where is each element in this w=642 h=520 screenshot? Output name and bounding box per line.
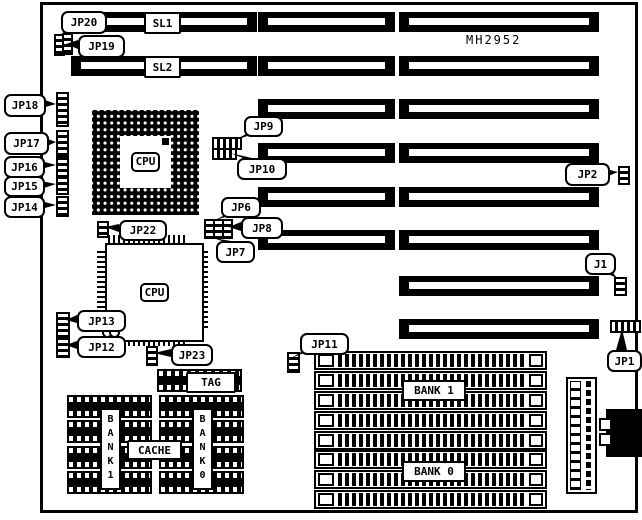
- callout-jp15: JP15: [4, 176, 45, 197]
- pointer-jp22: [105, 224, 119, 232]
- callout-jp13: JP13: [77, 310, 126, 332]
- callout-jp10: JP10: [237, 158, 287, 180]
- callout-jp7: JP7: [216, 241, 255, 263]
- callout-jp23: JP23: [171, 344, 213, 366]
- pointer-jp19: [66, 40, 78, 49]
- callout-jp20: JP20: [61, 11, 107, 34]
- callout-jp12: JP12: [77, 336, 126, 358]
- pointer-jp1: [616, 329, 627, 350]
- pointer-jp23: [154, 349, 171, 357]
- callout-jp9: JP9: [244, 116, 283, 137]
- pointer-jp8: [229, 222, 241, 231]
- callout-jp17: JP17: [4, 132, 49, 155]
- callout-j1: J1: [585, 253, 616, 275]
- pointer-jp13: [66, 315, 77, 323]
- callout-jp8: JP8: [241, 217, 283, 239]
- motherboard-diagram: MH2952 SL1 SL2 CPU CPU TAG BANK1 BANK0 C: [0, 0, 642, 520]
- callout-jp6: JP6: [221, 197, 261, 218]
- callout-pointers: [0, 0, 642, 520]
- callout-jp18: JP18: [4, 94, 46, 117]
- callout-jp14: JP14: [4, 196, 45, 218]
- callout-jp16: JP16: [4, 156, 45, 178]
- callout-jp1: JP1: [607, 350, 642, 372]
- callout-jp19: JP19: [78, 35, 125, 58]
- callout-jp22: JP22: [119, 220, 167, 241]
- callout-jp11: JP11: [300, 333, 349, 355]
- callout-jp2: JP2: [565, 163, 610, 186]
- pointer-jp12: [66, 341, 77, 349]
